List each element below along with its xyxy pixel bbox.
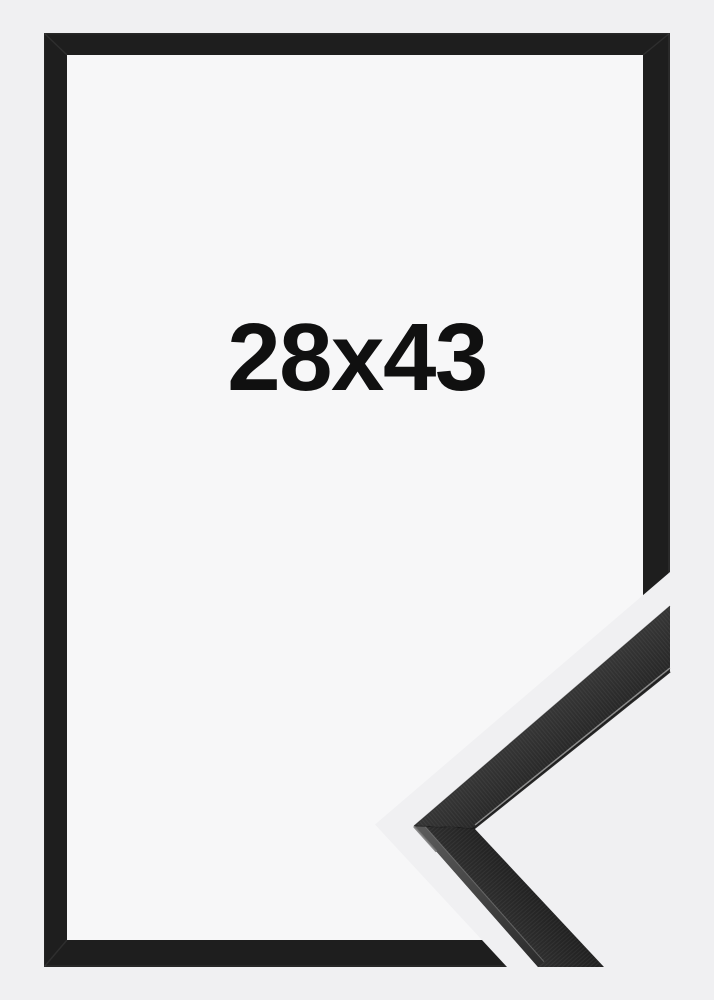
- frame-product-image: 28x43: [0, 0, 714, 1000]
- frame-graphic: [0, 0, 714, 1000]
- size-label: 28x43: [0, 310, 714, 406]
